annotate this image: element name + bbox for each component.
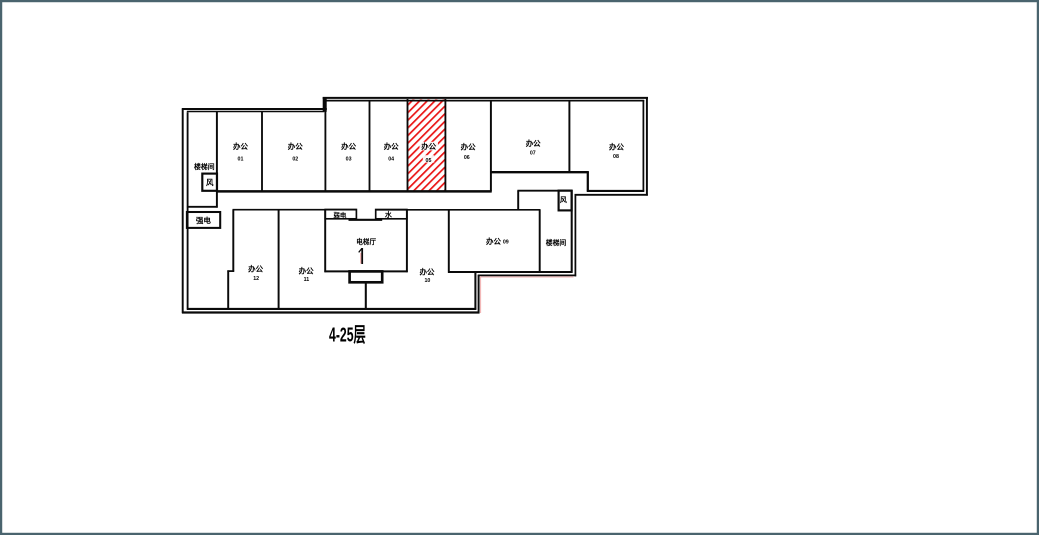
- svg-text:风: 风: [560, 195, 567, 204]
- svg-text:办公: 办公: [526, 138, 541, 148]
- svg-text:06: 06: [464, 155, 470, 161]
- svg-text:02: 02: [292, 156, 298, 162]
- svg-text:楼梯间: 楼梯间: [194, 162, 215, 171]
- svg-text:办公: 办公: [248, 263, 263, 273]
- svg-text:办公: 办公: [288, 141, 303, 151]
- svg-text:办公: 办公: [421, 141, 436, 151]
- svg-text:办公: 办公: [486, 236, 501, 246]
- svg-text:04: 04: [388, 156, 394, 162]
- svg-text:水: 水: [385, 210, 393, 219]
- svg-text:弱电: 弱电: [333, 210, 347, 219]
- svg-text:4-25层: 4-25层: [329, 325, 366, 347]
- svg-text:办公: 办公: [461, 142, 476, 152]
- svg-text:办公: 办公: [299, 266, 314, 276]
- svg-text:11: 11: [304, 277, 310, 283]
- svg-text:楼梯间: 楼梯间: [546, 238, 567, 247]
- svg-text:强电: 强电: [196, 215, 211, 225]
- svg-text:10: 10: [424, 278, 430, 284]
- svg-text:办公: 办公: [609, 142, 624, 152]
- svg-text:办公: 办公: [384, 141, 399, 151]
- svg-text:办公: 办公: [341, 141, 356, 151]
- svg-text:办公: 办公: [420, 267, 435, 277]
- svg-text:07: 07: [530, 151, 536, 157]
- svg-text:05: 05: [426, 158, 432, 164]
- svg-text:办公: 办公: [233, 141, 248, 151]
- svg-text:风: 风: [206, 178, 214, 187]
- svg-text:电梯厅: 电梯厅: [356, 237, 376, 246]
- svg-text:12: 12: [253, 276, 259, 282]
- svg-text:03: 03: [346, 156, 352, 162]
- svg-text:01: 01: [238, 156, 244, 162]
- svg-text:09: 09: [503, 240, 509, 246]
- svg-text:08: 08: [613, 154, 619, 160]
